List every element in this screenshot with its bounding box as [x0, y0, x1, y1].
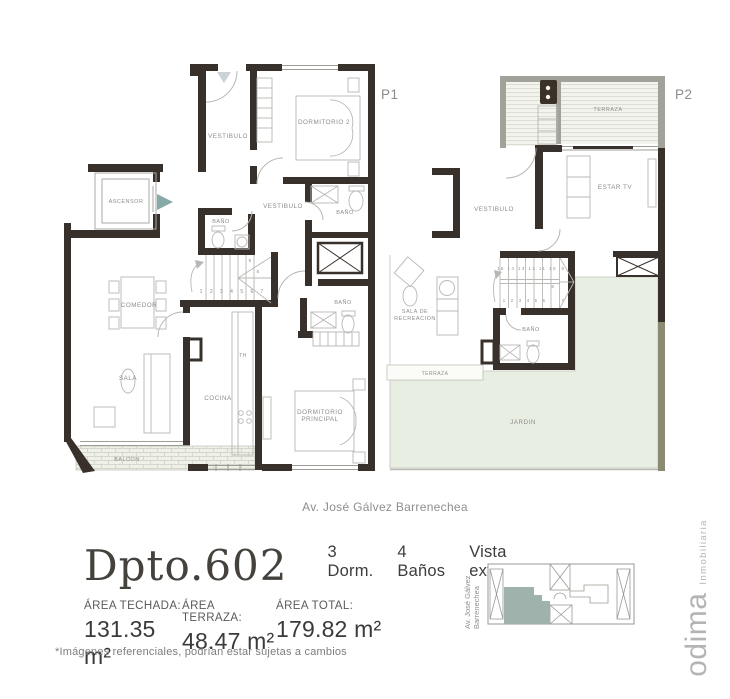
room-label: BAÑO	[334, 299, 352, 306]
entry-arrow-icon	[157, 72, 231, 210]
room-label: 7	[260, 289, 263, 295]
room-label: BAÑO	[212, 218, 230, 225]
p1-stairs	[191, 255, 271, 303]
room-label: VESTIBULO	[208, 133, 248, 140]
room-label: 15 14 13 12 11 10	[497, 266, 557, 271]
area-techada: ÁREA TECHADA: 131.35 m²	[84, 600, 182, 670]
grill-icon	[540, 80, 557, 104]
room-label: COCINA	[204, 395, 232, 402]
plan-tag-p1: P1	[381, 87, 399, 102]
brand-tagline: Inmobiliaria	[698, 519, 709, 584]
spec-bathrooms: 4 Baños	[397, 543, 445, 581]
room-label: BAÑO	[522, 326, 540, 333]
room-label: COMEDOR	[121, 302, 157, 309]
spec-bedrooms: 3 Dorm.	[328, 543, 374, 581]
room-label: TERRAZA	[593, 107, 622, 113]
street-label: Av. José Gálvez Barrenechea	[285, 500, 485, 514]
room-label: DORMITORIO 2	[298, 119, 350, 126]
area-total-value: 179.82 m²	[276, 616, 381, 643]
area-summary: ÁREA TECHADA: 131.35 m² ÁREA TERRAZA: 48…	[84, 600, 504, 670]
disclaimer: *Imágenes referenciales, podrían estar s…	[55, 646, 347, 658]
room-label: SALA DERECREACION	[394, 309, 436, 322]
unit-title: Dpto.602	[84, 545, 288, 587]
area-terraza-label: ÁREA TERRAZA:	[182, 600, 276, 624]
room-label: VESTIBULO	[474, 206, 514, 213]
title-row: Dpto.602 3 Dorm. 4 Baños Vista externa	[84, 543, 504, 587]
room-label: 1 2 3 4 5 6	[503, 298, 548, 303]
floor-plan-p1: VESTIBULODORMITORIO 2ASCENSORBAÑOVESTIBU…	[64, 64, 375, 473]
room-label: 8	[552, 284, 555, 289]
p2-garden-wall	[658, 322, 665, 471]
room-label: ESTAR TV	[598, 184, 633, 191]
brand-name: odima	[680, 593, 714, 677]
room-label: ASCENSOR	[109, 199, 144, 205]
room-label: 7	[562, 298, 565, 303]
room-label: 8	[256, 269, 259, 274]
area-total: ÁREA TOTAL: 179.82 m²	[276, 600, 381, 670]
area-techada-label: ÁREA TECHADA:	[84, 600, 182, 612]
room-label: SALA	[119, 375, 137, 382]
room-label: VESTIBULO	[263, 203, 303, 210]
room-label: DORMITORIOPRINCIPAL	[297, 409, 343, 423]
minimap-street-label: Av. José Gálvez Barrenechea	[463, 559, 485, 629]
room-label: JARDIN	[510, 419, 536, 426]
area-total-label: ÁREA TOTAL:	[276, 600, 381, 612]
room-label: BAÑO	[336, 209, 354, 216]
minimap-drawing	[486, 561, 638, 629]
brand-logo: odima Inmobiliaria	[680, 533, 724, 663]
room-label: TH	[239, 353, 247, 359]
room-label: 9	[562, 266, 565, 271]
area-terraza: ÁREA TERRAZA: 48.47 m²	[182, 600, 276, 670]
floorplan-sheet: VESTIBULODORMITORIO 2ASCENSORBAÑOVESTIBU…	[0, 0, 730, 699]
room-label: TERRAZA	[422, 371, 449, 377]
floor-plan-p2: TERRAZAESTAR TVVESTIBULOSALA DERECREACIO…	[387, 76, 665, 471]
room-label: 9	[248, 258, 251, 263]
location-minimap	[486, 561, 638, 634]
floor-plans-drawing: VESTIBULODORMITORIO 2ASCENSORBAÑOVESTIBU…	[0, 0, 730, 520]
room-label: BALCON	[114, 457, 140, 463]
plan-tag-p2: P2	[675, 87, 693, 102]
area-techada-value: 131.35 m²	[84, 616, 182, 670]
room-label: 1 2 3 4 5 6	[200, 289, 257, 295]
